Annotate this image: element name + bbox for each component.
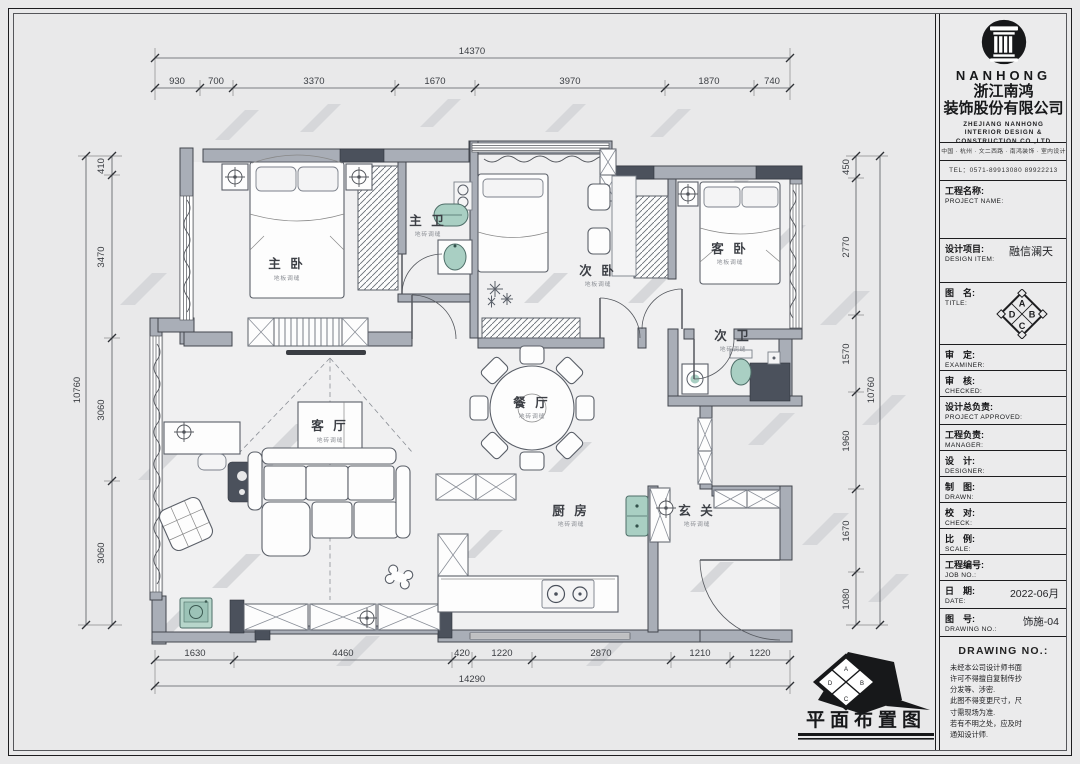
svg-text:3060: 3060 xyxy=(96,542,107,563)
floor-plan-canvas: 主 卧 地板调缝 主 卫 地砖调缝 次 卧 地板调缝 客 卧 地板调缝 次 卫 … xyxy=(0,0,1080,764)
abcd-diamond-icon: A B C D xyxy=(995,289,1049,339)
svg-text:2870: 2870 xyxy=(590,648,611,659)
field-job-no: 工程编号:JOB NO.: xyxy=(940,555,1067,581)
svg-text:B: B xyxy=(860,681,864,687)
field-project-name: 工程名称: PROJECT NAME: xyxy=(940,181,1067,239)
field-check: 校 对:CHECK: xyxy=(940,503,1067,529)
svg-text:930: 930 xyxy=(169,76,185,87)
svg-text:1220: 1220 xyxy=(749,648,770,659)
svg-text:地砖调缝: 地砖调缝 xyxy=(684,520,710,528)
svg-text:1870: 1870 xyxy=(698,76,719,87)
field-examiner: 审 定:EXAMINER: xyxy=(940,345,1067,371)
svg-text:B: B xyxy=(1029,309,1036,319)
svg-text:C: C xyxy=(844,697,849,703)
room-label-living: 客 厅 xyxy=(310,418,348,433)
svg-text:420: 420 xyxy=(454,648,470,659)
svg-text:地砖调缝: 地砖调缝 xyxy=(720,345,746,353)
svg-text:1080: 1080 xyxy=(841,588,852,609)
svg-text:14290: 14290 xyxy=(459,674,485,685)
svg-text:700: 700 xyxy=(208,76,224,87)
svg-text:1630: 1630 xyxy=(184,648,205,659)
company-phone: TEL：0571-89913080 89922213 xyxy=(940,161,1067,181)
svg-text:A: A xyxy=(1019,299,1026,309)
svg-text:1210: 1210 xyxy=(689,648,710,659)
svg-text:2770: 2770 xyxy=(841,236,852,257)
field-title: 图 名: TITLE: A B C D xyxy=(940,283,1067,345)
room-label-kitchen: 厨 房 xyxy=(552,503,589,518)
room-label-second-bath: 次 卫 xyxy=(714,328,751,343)
room-label-guest-bed: 客 卧 xyxy=(710,241,748,256)
svg-text:地板调缝: 地板调缝 xyxy=(585,280,611,288)
drawing-notes: DRAWING NO.: 未经本公司设计师书面 许可不得擅自复制传抄 分发等、涉… xyxy=(940,637,1067,751)
svg-text:3060: 3060 xyxy=(96,399,107,420)
svg-text:450: 450 xyxy=(841,159,852,175)
svg-text:3370: 3370 xyxy=(303,76,324,87)
notes-header: DRAWING NO.: xyxy=(946,645,1061,657)
field-project-approved: 设计总负责:PROJECT APPROVED: xyxy=(940,397,1067,425)
drawing-title-stamp: A B C D 平面布置图 xyxy=(798,652,934,740)
svg-text:1960: 1960 xyxy=(841,430,852,451)
stove xyxy=(542,580,594,608)
field-drawn: 制 图:DRAWN: xyxy=(940,477,1067,503)
svg-text:14370: 14370 xyxy=(459,46,485,57)
svg-text:地砖调缝: 地砖调缝 xyxy=(415,230,441,238)
svg-text:410: 410 xyxy=(96,158,107,174)
svg-text:1570: 1570 xyxy=(841,343,852,364)
field-manager: 工程负责:MANAGER: xyxy=(940,425,1067,451)
brand-name-en: NANHONG xyxy=(940,68,1067,83)
svg-text:3970: 3970 xyxy=(559,76,580,87)
field-checked: 审 核:CHECKED: xyxy=(940,371,1067,397)
svg-text:地板调缝: 地板调缝 xyxy=(274,274,300,282)
svg-text:C: C xyxy=(1019,321,1026,331)
svg-text:1220: 1220 xyxy=(491,648,512,659)
svg-text:1670: 1670 xyxy=(424,76,445,87)
desk xyxy=(164,422,240,454)
design-item-value: 融信澜天 xyxy=(1009,243,1053,259)
toilet xyxy=(731,359,751,385)
sheet-title: 平面布置图 xyxy=(806,708,926,731)
svg-text:D: D xyxy=(828,681,833,687)
field-drawing-no: 图 号: 饰施-04 DRAWING NO.: xyxy=(940,609,1067,637)
svg-text:地砖调缝: 地砖调缝 xyxy=(558,520,584,528)
svg-text:4460: 4460 xyxy=(332,648,353,659)
svg-text:D: D xyxy=(1009,309,1016,319)
field-scale: 比 例:SCALE: xyxy=(940,529,1067,555)
svg-text:地砖调缝: 地砖调缝 xyxy=(519,412,545,420)
brand-name-cn: 浙江南鸿 xyxy=(940,83,1067,100)
room-label-entry: 玄 关 xyxy=(678,503,715,518)
room-label-master: 主 卧 xyxy=(268,256,305,271)
date-value: 2022-06月 xyxy=(1010,586,1059,601)
drawing-no-value: 饰施-04 xyxy=(1023,614,1059,629)
room-label-dining: 餐 厅 xyxy=(512,395,550,410)
field-date: 日 期: 2022-06月 DATE: xyxy=(940,581,1067,609)
title-block: NANHONG 浙江南鸿 装饰股份有限公司 ZHEJIANG NANHONG I… xyxy=(939,13,1067,751)
washing-machine xyxy=(180,598,212,628)
svg-text:10760: 10760 xyxy=(866,377,877,403)
room-label-master-bath: 主 卫 xyxy=(409,213,446,228)
svg-text:1670: 1670 xyxy=(841,520,852,541)
field-design-item: 设计项目: 融信澜天 DESIGN ITEM: xyxy=(940,239,1067,283)
svg-text:地砖调缝: 地砖调缝 xyxy=(317,436,343,444)
tv-icon xyxy=(286,350,366,355)
svg-text:3470: 3470 xyxy=(96,246,107,267)
room-label-second-bed: 次 卧 xyxy=(579,263,616,278)
company-address: 中国 · 杭州 · 文二西路 · 南鸿装饰 · 室内设计 xyxy=(940,143,1067,161)
company-header: NANHONG 浙江南鸿 装饰股份有限公司 ZHEJIANG NANHONG I… xyxy=(940,13,1067,143)
svg-text:740: 740 xyxy=(764,76,780,87)
toilet xyxy=(444,244,466,270)
nanhong-logo-icon xyxy=(981,19,1027,65)
svg-text:A: A xyxy=(844,667,848,673)
svg-text:地板调缝: 地板调缝 xyxy=(717,258,743,266)
svg-text:10760: 10760 xyxy=(72,377,83,403)
drawing-sheet: 主 卧 地板调缝 主 卫 地砖调缝 次 卧 地板调缝 客 卧 地板调缝 次 卫 … xyxy=(0,0,1080,764)
field-designer: 设 计:DESIGNER: xyxy=(940,451,1067,477)
